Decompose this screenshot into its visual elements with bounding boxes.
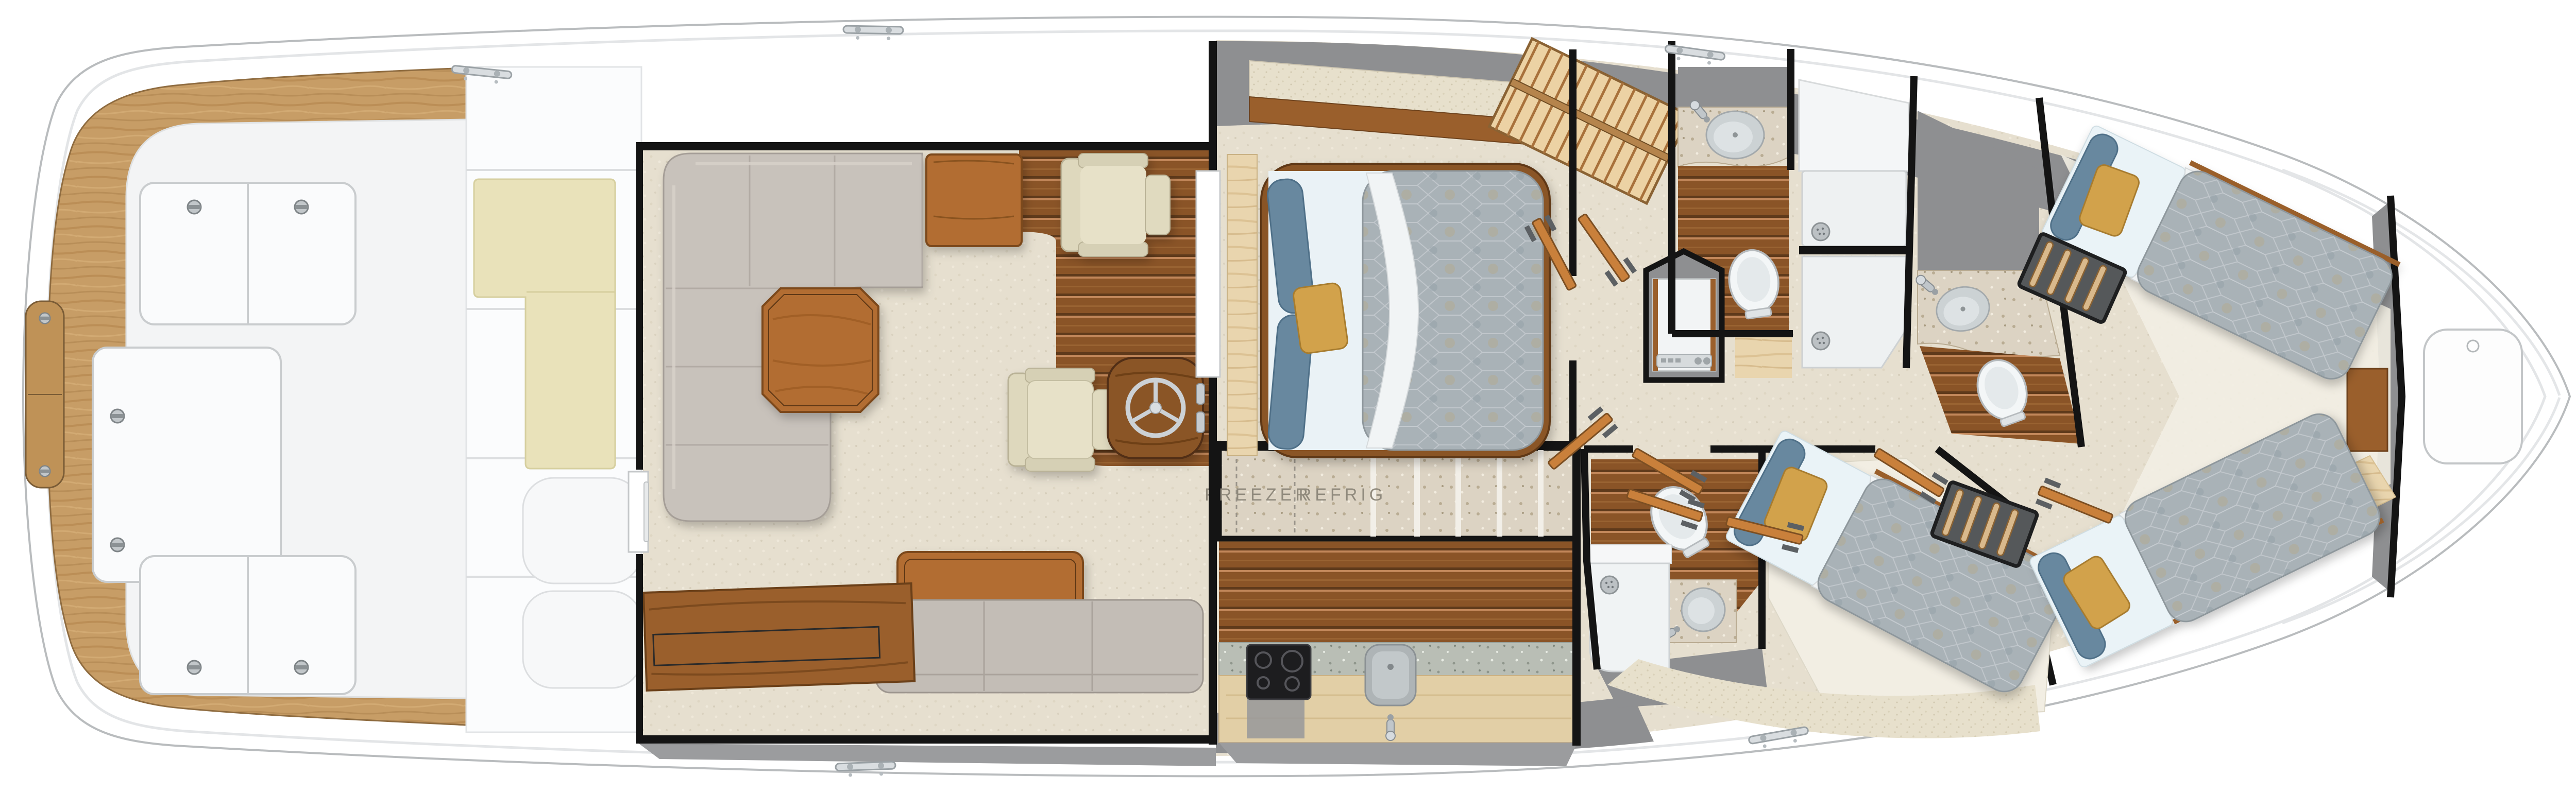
hatch-latch-icon [40, 313, 50, 324]
shower-drain-icon [1812, 223, 1829, 240]
cockpit [26, 68, 466, 725]
yacht-floorplan: FREEZER REFRIG [0, 0, 2576, 793]
shower-stalls [1799, 80, 1910, 368]
throttle-lever [1196, 412, 1205, 433]
shower-drain-icon [1812, 332, 1829, 350]
refrig-label: REFRIG [1299, 485, 1386, 505]
dishwasher-front [1247, 699, 1304, 738]
mezzanine-seat-cushion [523, 591, 641, 688]
master-headboard-locker [1227, 154, 1257, 456]
master-pocket-door [1196, 171, 1220, 377]
cooktop [1247, 645, 1311, 699]
hatch-latch-icon [111, 409, 124, 423]
berth-foot-wood [2347, 369, 2387, 451]
hatch-latch-icon [188, 661, 201, 674]
hatch-latch-icon [111, 538, 124, 551]
shower-tray [1802, 256, 1906, 368]
galley-fwd-wall [1572, 444, 1581, 746]
galley-wood-floor [1219, 539, 1578, 644]
salon-entry-door-handle [644, 482, 649, 542]
salon-aft-bench [876, 600, 1203, 693]
freezer-label: FREEZER [1205, 485, 1312, 505]
shower-threshold [1590, 545, 1671, 563]
helm-console [1108, 358, 1205, 458]
salon-coffee-table-octagon [762, 288, 878, 412]
salon-sideboard [643, 583, 914, 691]
sofa-end-table [926, 154, 1022, 246]
maple-floor-patch [1735, 335, 1792, 378]
hatch-latch-icon [295, 661, 308, 674]
bow-hatch [2424, 330, 2522, 463]
galley-aft-gray-band [1219, 743, 1578, 766]
shower-drain-icon [1601, 576, 1618, 594]
hatch-latch-icon [295, 200, 308, 214]
head-port [1590, 459, 1761, 671]
salon [629, 142, 1216, 766]
washer-alcove [1646, 251, 1722, 380]
cleat-icon [836, 762, 896, 778]
master-pillow-gold [1293, 282, 1349, 354]
hatch-latch-icon [40, 466, 50, 477]
sink-icon [1706, 111, 1764, 159]
throttle-lever [1196, 384, 1205, 404]
master-bed [1261, 164, 1550, 457]
galley: FREEZER REFRIG [1205, 441, 1581, 766]
shower-divider-wall [1799, 246, 1910, 254]
hatch-latch-icon [188, 200, 201, 214]
mezzanine-seat-cushion [523, 478, 641, 583]
